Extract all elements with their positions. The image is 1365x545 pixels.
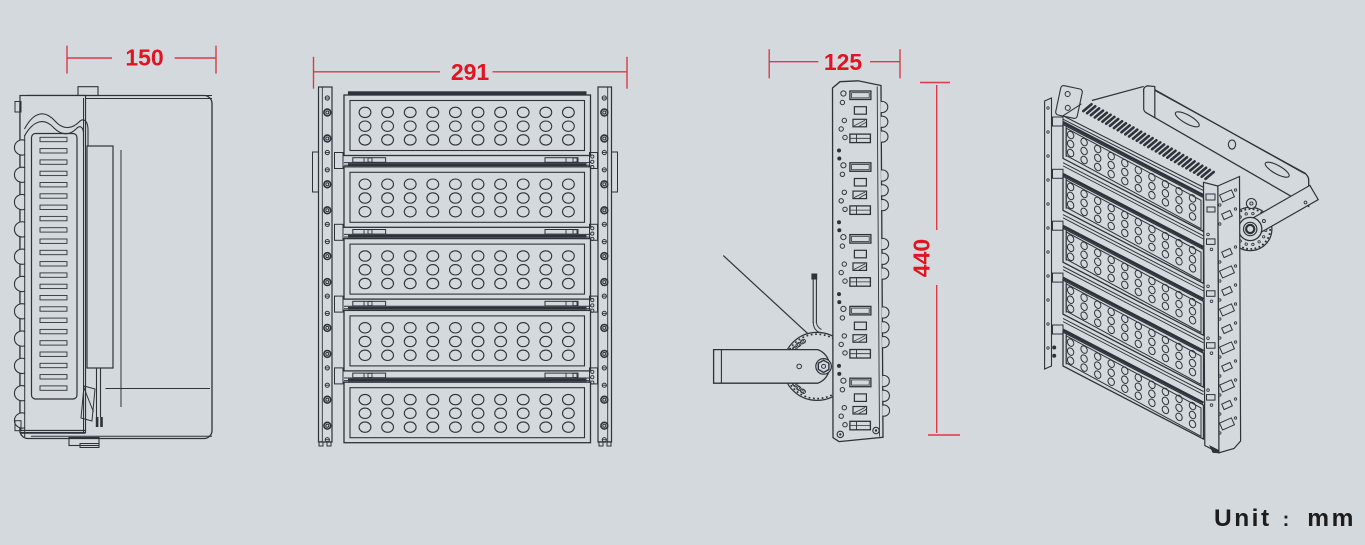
svg-text:150: 150 xyxy=(125,45,163,71)
svg-text:125: 125 xyxy=(824,49,863,75)
svg-text:440: 440 xyxy=(909,239,935,277)
svg-text:291: 291 xyxy=(451,59,490,85)
svg-text:Unit : mm: Unit : mm xyxy=(1214,505,1356,532)
